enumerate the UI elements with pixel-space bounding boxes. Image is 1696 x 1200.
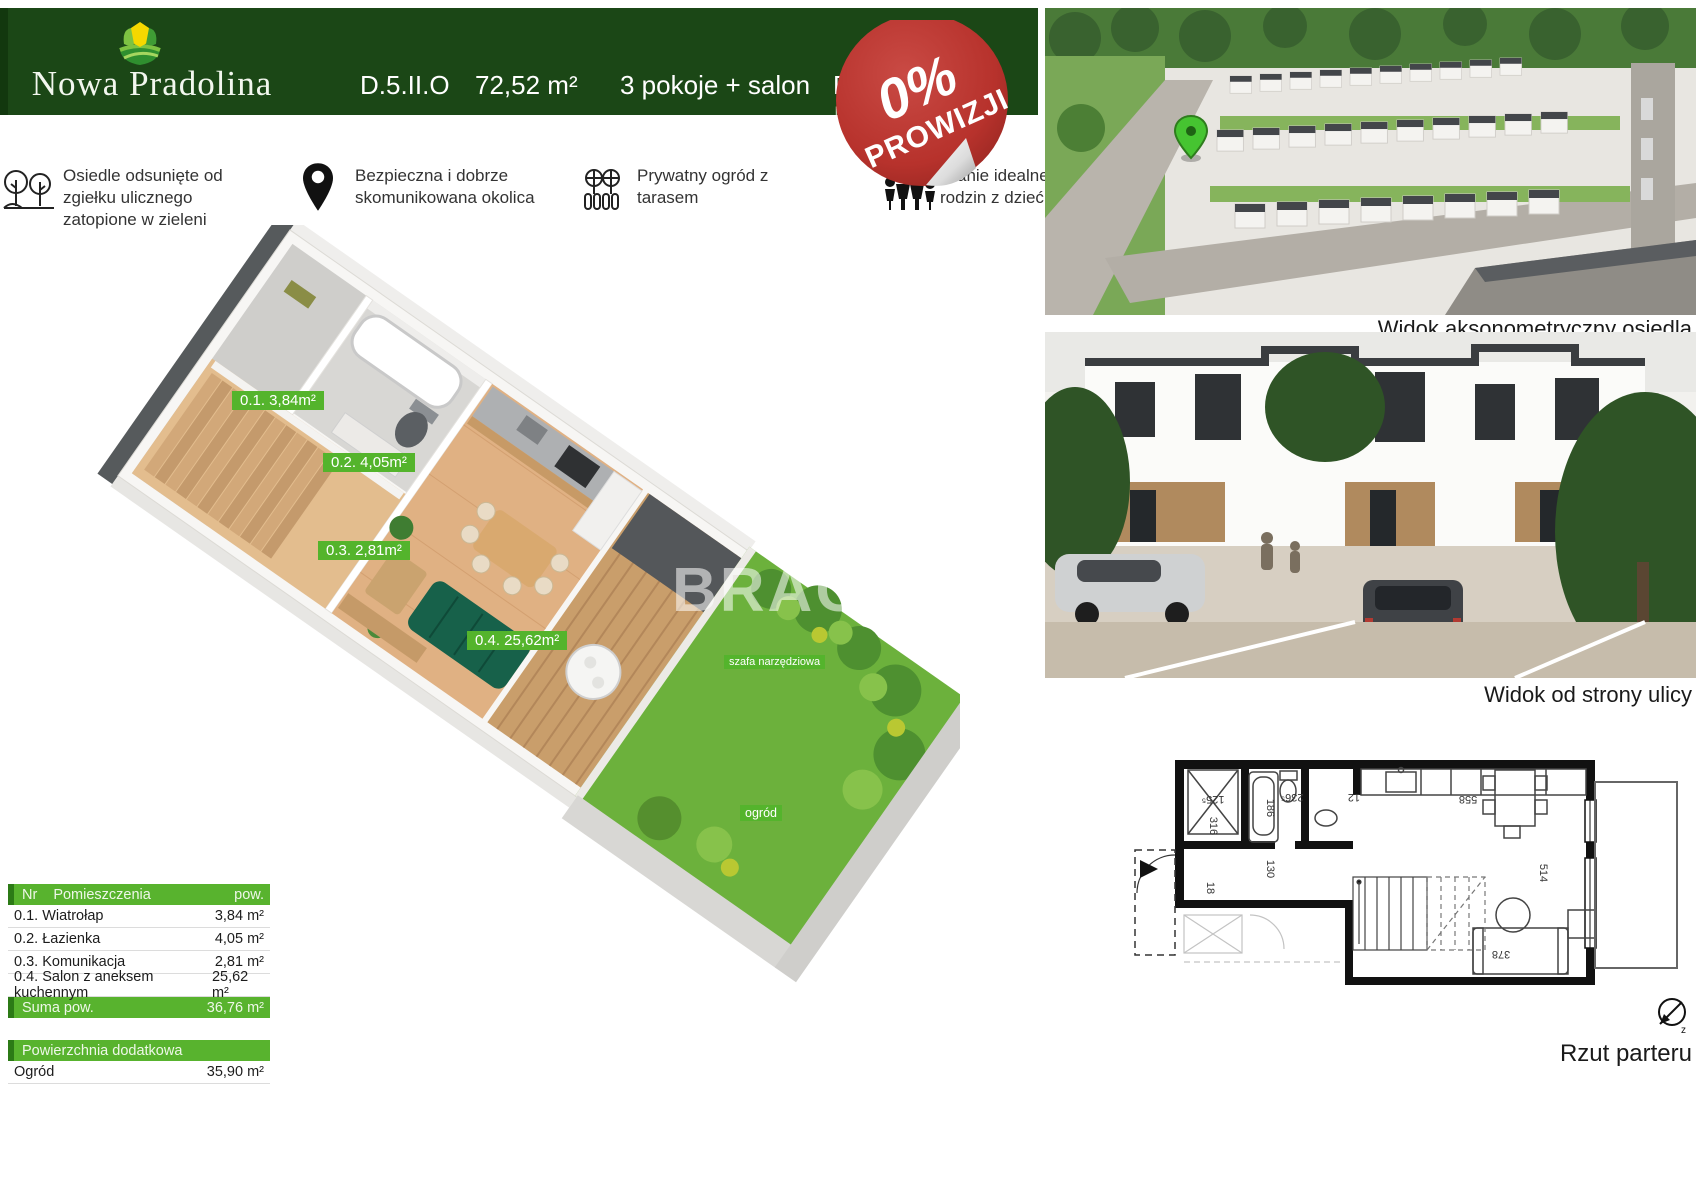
room-label-0-3: 0.3. 2,81m² bbox=[318, 541, 410, 560]
room-area: 25,62 m² bbox=[212, 969, 264, 1001]
tulip-logo-icon bbox=[112, 20, 168, 66]
street-view-image bbox=[1045, 332, 1696, 678]
extra-area-row: Ogród 35,90 m² bbox=[8, 1061, 270, 1084]
unit-area: 72,52 m² bbox=[475, 70, 578, 101]
col-area: pow. bbox=[234, 887, 264, 903]
extra-row-value: 35,90 m² bbox=[207, 1064, 264, 1080]
room-name: 0.3. Komunikacja bbox=[14, 954, 125, 970]
room-area-table: Nr Pomieszczenia pow. 0.1. Wiatrołap 3,8… bbox=[8, 884, 270, 1084]
unit-code: D.5.II.O bbox=[360, 70, 450, 101]
dim-12: 12 bbox=[1348, 791, 1360, 803]
total-label: Suma pow. bbox=[22, 1000, 94, 1016]
room-area: 3,84 m² bbox=[215, 908, 264, 924]
technical-floor-plan: 125⁵ 316 18 186 236⁵ 12 558 130 514 378 … bbox=[1080, 700, 1696, 1040]
compass-letter: z bbox=[1681, 1025, 1686, 1036]
zero-commission-sticker: 0% PROWIZJI bbox=[826, 20, 1026, 190]
dim-18: 18 bbox=[1204, 882, 1216, 894]
total-value: 36,76 m² bbox=[207, 1000, 264, 1016]
room-label-0-2: 0.2. 4,05m² bbox=[323, 453, 415, 472]
extra-row-label: Ogród bbox=[14, 1064, 54, 1080]
feature-text-green: Osiedle odsunięte od zgiełku ulicznego z… bbox=[63, 165, 258, 231]
trees-icon bbox=[2, 166, 56, 212]
room-name: 0.4. Salon z aneksem kuchennym bbox=[14, 969, 212, 1001]
room-label-0-4: 0.4. 25,62m² bbox=[467, 631, 567, 650]
extra-area-header: Powierzchnia dodatkowa bbox=[8, 1040, 270, 1061]
dim-236: 236⁵ bbox=[1281, 791, 1304, 803]
label-garden: ogród bbox=[740, 805, 782, 821]
table-header-row: Nr Pomieszczenia pow. bbox=[8, 884, 270, 905]
dim-130: 130 bbox=[1264, 860, 1276, 878]
dim-125: 125⁵ bbox=[1202, 793, 1225, 805]
north-arrow-icon: z bbox=[1659, 999, 1686, 1036]
table-row: 0.4. Salon z aneksem kuchennym 25,62 m² bbox=[8, 974, 270, 997]
caption-floorplan: Rzut parteru bbox=[1400, 1040, 1692, 1068]
room-area: 2,81 m² bbox=[215, 954, 264, 970]
room-name: 0.1. Wiatrołap bbox=[14, 908, 103, 924]
extra-header-label: Powierzchnia dodatkowa bbox=[22, 1043, 182, 1059]
room-name: 0.2. Łazienka bbox=[14, 931, 100, 947]
offer-sheet: Nowa Pradolina D.5.II.O 72,52 m² 3 pokoj… bbox=[0, 0, 1696, 1200]
agency-watermark: BRACIA bbox=[672, 555, 931, 626]
sticker-graphic: 0% PROWIZJI bbox=[826, 20, 1026, 190]
aerial-view-image bbox=[1045, 8, 1696, 315]
feature-text-location: Bezpieczna i dobrze skomunikowana okolic… bbox=[355, 165, 540, 209]
map-pin-icon bbox=[303, 163, 333, 211]
dim-558: 558 bbox=[1459, 793, 1477, 805]
garden-icon bbox=[582, 168, 622, 212]
col-nr: Nr bbox=[22, 887, 37, 903]
col-name: Pomieszczenia bbox=[53, 887, 151, 903]
table-row: 0.2. Łazienka 4,05 m² bbox=[8, 928, 270, 951]
room-area: 4,05 m² bbox=[215, 931, 264, 947]
unit-rooms: 3 pokoje + salon bbox=[620, 70, 810, 101]
table-row: 0.1. Wiatrołap 3,84 m² bbox=[8, 905, 270, 928]
dim-316: 316 bbox=[1207, 817, 1219, 835]
dim-514: 514 bbox=[1537, 864, 1549, 882]
feature-text-garden: Prywatny ogród z tarasem bbox=[637, 165, 787, 209]
room-label-0-1: 0.1. 3,84m² bbox=[232, 391, 324, 410]
dim-378: 378 bbox=[1492, 948, 1510, 960]
brand-name: Nowa Pradolina bbox=[22, 64, 282, 104]
dim-186: 186 bbox=[1264, 799, 1276, 817]
label-tool-cabinet: szafa narzędziowa bbox=[724, 655, 825, 669]
